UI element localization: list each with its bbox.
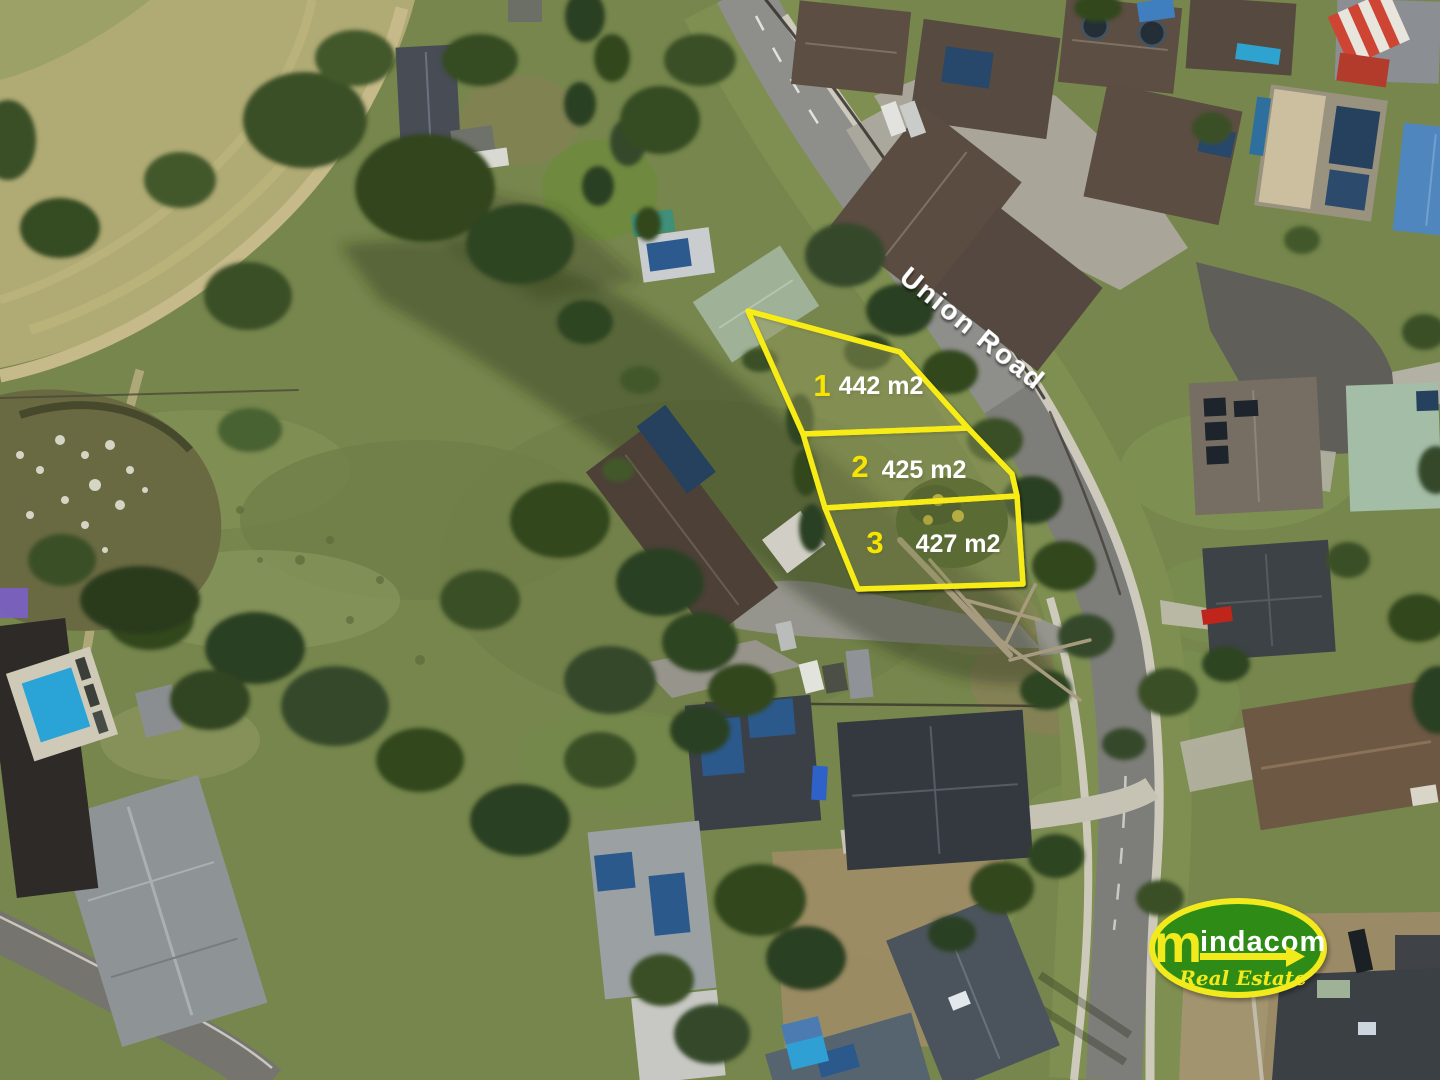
trampoline	[1139, 20, 1165, 46]
house-roof	[1186, 0, 1297, 76]
shed	[508, 0, 542, 22]
green-roof-house	[1346, 382, 1440, 511]
aerial-photo: 1 442 m2 2 425 m2 3 427 m2 Union Road m …	[0, 0, 1440, 1080]
lot-2-number: 2	[851, 449, 868, 484]
logo-initial: m	[1154, 914, 1202, 974]
skylight	[1358, 1022, 1376, 1035]
solar-panels	[1329, 106, 1381, 170]
house-roof	[1202, 540, 1336, 661]
lot-1-number: 1	[813, 368, 830, 403]
blue-car	[811, 766, 828, 801]
solar-panels	[941, 46, 994, 88]
lot-3-number: 3	[866, 525, 883, 560]
lot-3-area: 427 m2	[916, 530, 1001, 558]
house-roof	[837, 710, 1033, 871]
purple-umbrella	[0, 588, 28, 618]
solar-panels	[594, 852, 636, 892]
logo-tagline: Real Estate	[1178, 966, 1307, 990]
modern-house	[1242, 83, 1388, 222]
house-roof	[791, 0, 911, 95]
lot-1-area: 442 m2	[839, 372, 924, 400]
house-roof	[1189, 377, 1324, 516]
lot-2-area: 425 m2	[882, 456, 967, 484]
mindacom-logo: m indacom Real Estate	[1152, 901, 1326, 995]
